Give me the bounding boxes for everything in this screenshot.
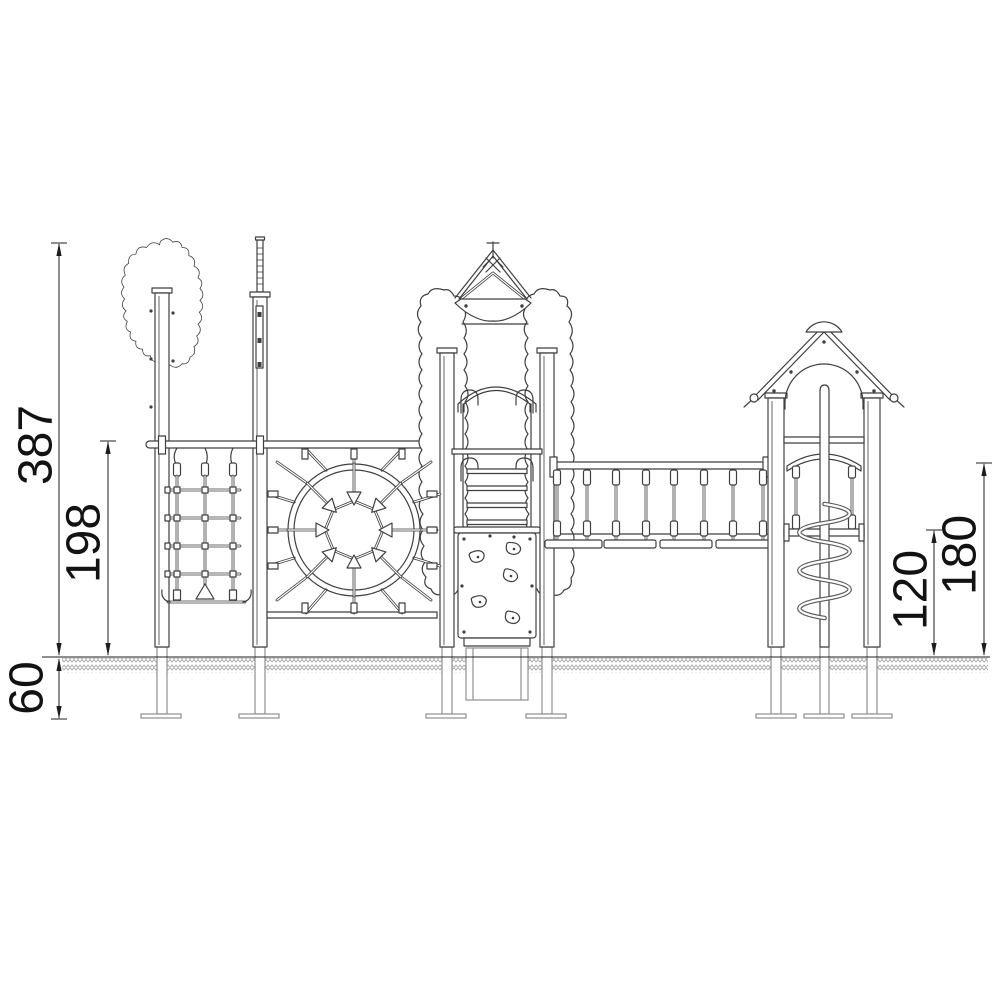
top-bar <box>146 436 442 454</box>
grab-handles <box>461 390 533 481</box>
baluster-sleeve <box>793 466 800 478</box>
step <box>467 469 527 474</box>
arch-curves <box>458 387 536 412</box>
dim-label-180: 180 <box>934 515 987 595</box>
step <box>467 486 527 491</box>
net-bottom-triangle <box>196 584 214 599</box>
climbing-wall-foundation-box <box>466 648 528 700</box>
platform-edge <box>454 527 540 533</box>
plank <box>716 540 772 548</box>
interior-rail <box>452 449 542 454</box>
dim-label-198: 198 <box>58 503 111 583</box>
hanger-top-sleeves <box>554 470 767 485</box>
climbing-net <box>162 448 251 602</box>
technical-drawing-page: 387 198 60 120 180 <box>0 0 1000 1000</box>
plank <box>660 540 712 548</box>
tower-steps <box>467 469 527 525</box>
post-cap <box>861 393 883 398</box>
footing-plate <box>852 714 892 718</box>
central-tower <box>418 242 575 647</box>
dimension-total-height: 387 <box>10 243 68 656</box>
bolt <box>171 359 174 362</box>
bolt <box>149 309 152 312</box>
climbing-wall-panel <box>458 533 536 638</box>
footing-plate <box>426 714 466 718</box>
bar-flange <box>257 436 264 454</box>
bolt <box>258 338 262 343</box>
step <box>467 520 527 525</box>
footing-plate <box>526 714 566 718</box>
dim-label-120: 120 <box>885 550 938 630</box>
footing-plate <box>804 714 844 718</box>
dim-label-387: 387 <box>10 405 63 485</box>
step <box>467 503 527 508</box>
roof-valance <box>455 299 531 321</box>
tower-arch-doorway <box>458 387 536 412</box>
dimension-rail-height: 180 <box>934 463 993 656</box>
net-sleeve <box>174 590 181 600</box>
roof-finial-cross <box>483 242 503 272</box>
deck-end-plate <box>859 524 864 541</box>
post-body <box>540 353 554 647</box>
net-hooks <box>174 448 233 464</box>
bolt <box>258 312 262 317</box>
hanging-bridge <box>545 457 772 548</box>
footing-plate <box>239 714 279 718</box>
footing-plate <box>141 714 181 718</box>
climbing-wall <box>458 533 536 646</box>
bridge-top-rail <box>552 462 770 469</box>
spider-web-net <box>267 449 440 618</box>
net-sleeve <box>174 463 181 476</box>
baluster-sleeve <box>793 515 800 529</box>
footing-plate <box>756 714 796 718</box>
mast-top-cap <box>256 237 265 240</box>
post-cap <box>250 292 270 297</box>
bolt <box>149 405 152 408</box>
post-cap <box>537 348 557 353</box>
post-body <box>768 398 784 647</box>
net-sleeve <box>202 463 209 476</box>
post-cap <box>437 348 457 353</box>
bottom-board <box>464 638 530 646</box>
tower-roof <box>455 242 531 324</box>
roof-dome-cap <box>806 322 842 332</box>
bolt <box>520 304 523 307</box>
dimension-bar-height: 198 <box>58 441 117 656</box>
baluster-sleeve <box>849 466 856 478</box>
post-cap <box>765 393 787 398</box>
post-cap <box>152 288 172 293</box>
bolt <box>258 362 262 367</box>
deck-end-plate <box>784 524 789 541</box>
eave-cap <box>890 394 898 402</box>
net-sleeve <box>230 590 237 600</box>
net-sleeve <box>230 463 237 476</box>
post-body <box>440 353 454 647</box>
elevation-drawing: 387 198 60 120 180 <box>0 0 1000 1000</box>
right-tower <box>744 322 904 647</box>
net-vertical-ropes-core <box>177 476 233 596</box>
plank <box>604 540 656 548</box>
bolt <box>464 304 467 307</box>
spiral-slide-coil <box>799 504 849 618</box>
fireman-pole <box>820 385 829 647</box>
bolt <box>171 311 174 314</box>
plank <box>545 540 602 548</box>
bridge-hangers <box>554 470 767 540</box>
bolt <box>149 357 152 360</box>
post-body <box>864 398 880 647</box>
horizontal-bar <box>146 441 442 448</box>
eave-cap <box>750 394 758 402</box>
bar-flange <box>159 436 166 454</box>
foundations <box>141 647 892 718</box>
dimension-foundation-depth: 60 <box>1 658 68 719</box>
bridge-planks <box>545 540 772 548</box>
dim-label-60: 60 <box>1 661 54 714</box>
